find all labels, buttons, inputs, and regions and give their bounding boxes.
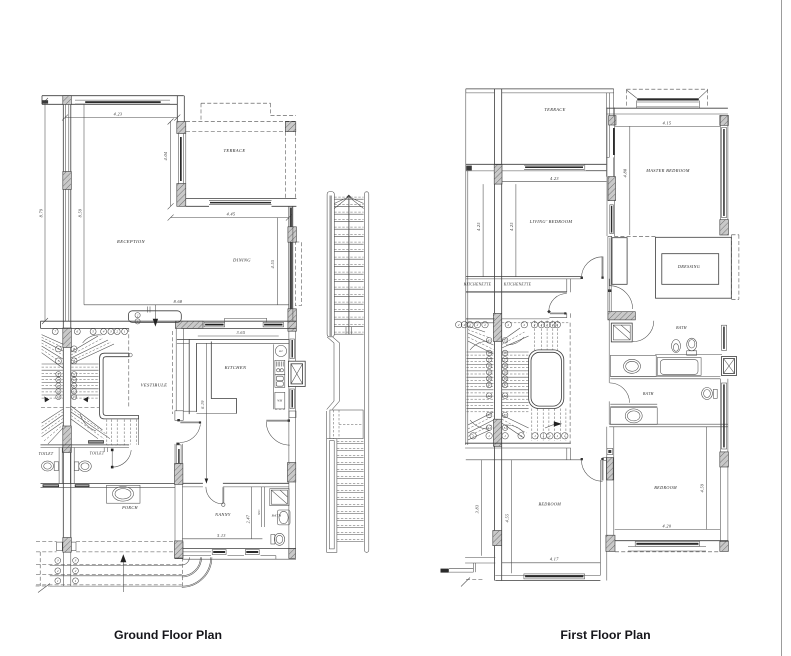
svg-text:WC: WC [257,509,261,515]
svg-text:21: 21 [488,383,492,387]
svg-text:10: 10 [57,378,61,382]
svg-text:4.55: 4.55 [270,260,275,269]
svg-text:28: 28 [504,364,508,368]
svg-text:30: 30 [504,377,508,381]
svg-text:BEDROOM: BEDROOM [538,502,561,507]
svg-text:4.15: 4.15 [663,120,672,125]
svg-text:3.83: 3.83 [474,505,479,514]
svg-text:2.47: 2.47 [245,514,250,523]
svg-text:PORCH: PORCH [121,505,138,510]
svg-text:4.80: 4.80 [623,168,628,177]
svg-text:4: 4 [103,330,105,334]
svg-text:LIVING’ BEDROOM: LIVING’ BEDROOM [529,219,573,224]
svg-text:3: 3 [110,330,112,334]
svg-text:W.M: W.M [277,400,283,403]
svg-text:32: 32 [504,394,508,398]
svg-text:10: 10 [73,378,77,382]
svg-text:4.55: 4.55 [505,514,510,523]
svg-text:34: 34 [504,426,508,430]
svg-text:BATH: BATH [643,392,654,396]
svg-text:17: 17 [488,358,492,362]
svg-text:KITCHENETTE: KITCHENETTE [503,282,532,286]
svg-text:TERRACE: TERRACE [223,148,245,153]
svg-text:BATH: BATH [676,326,687,330]
svg-text:BEDROOM: BEDROOM [654,485,677,490]
svg-text:15: 15 [488,339,492,343]
svg-text:22: 22 [488,394,492,398]
svg-text:27: 27 [504,358,508,362]
svg-text:18: 18 [488,364,492,368]
svg-text:6.19: 6.19 [200,400,205,408]
svg-text:4.04: 4.04 [163,152,168,161]
svg-text:4.25: 4.25 [509,222,514,231]
svg-text:1: 1 [124,330,126,334]
svg-text:REF: REF [278,351,284,353]
svg-text:12: 12 [57,390,61,394]
svg-text:VESTIBULE: VESTIBULE [141,383,168,388]
svg-text:33: 33 [504,413,508,417]
svg-text:8.79: 8.79 [39,208,44,217]
svg-text:DINING: DINING [232,258,251,263]
svg-text:8.59: 8.59 [78,208,83,217]
svg-text:8.68: 8.68 [174,299,183,304]
svg-text:MASTER BEDROOM: MASTER BEDROOM [645,168,690,173]
svg-text:3.65: 3.65 [237,330,246,335]
svg-text:TOILET: TOILET [90,452,105,456]
svg-text:TERRACE: TERRACE [544,107,565,112]
svg-text:TOILET: TOILET [39,452,54,456]
svg-text:4.20: 4.20 [663,523,672,528]
svg-text:23: 23 [488,413,492,417]
svg-text:4.17: 4.17 [550,557,559,562]
svg-text:4.45: 4.45 [227,211,236,216]
svg-text:20: 20 [488,377,492,381]
svg-text:4.23: 4.23 [114,112,123,117]
svg-text:12: 12 [73,390,77,394]
svg-text:First Floor Plan: First Floor Plan [560,628,650,642]
svg-text:6: 6 [76,330,78,334]
svg-text:2: 2 [116,330,118,334]
svg-text:4.23: 4.23 [550,176,559,181]
svg-text:25: 25 [504,339,508,343]
svg-text:Ground Floor Plan: Ground Floor Plan [114,628,222,642]
svg-text:RECEPTION: RECEPTION [116,239,145,244]
svg-text:KITCHENETTE: KITCHENETTE [463,282,492,286]
svg-text:13: 13 [57,395,61,399]
svg-text:5: 5 [92,330,94,334]
svg-text:KITCHEN: KITCHEN [224,365,247,370]
svg-text:29: 29 [504,370,508,374]
svg-text:13: 13 [73,395,77,399]
svg-text:NANNY: NANNY [214,512,231,517]
svg-text:DRESSING: DRESSING [677,264,700,269]
svg-text:4.25: 4.25 [476,222,481,231]
svg-text:31: 31 [504,383,508,387]
svg-text:4.59: 4.59 [699,483,704,492]
svg-text:24: 24 [488,426,492,430]
svg-text:7: 7 [54,330,56,334]
svg-text:19: 19 [488,370,492,374]
svg-text:BATH: BATH [272,514,282,518]
svg-text:5.13: 5.13 [217,533,225,538]
svg-text:16: 16 [488,351,492,355]
svg-text:26: 26 [504,351,508,355]
